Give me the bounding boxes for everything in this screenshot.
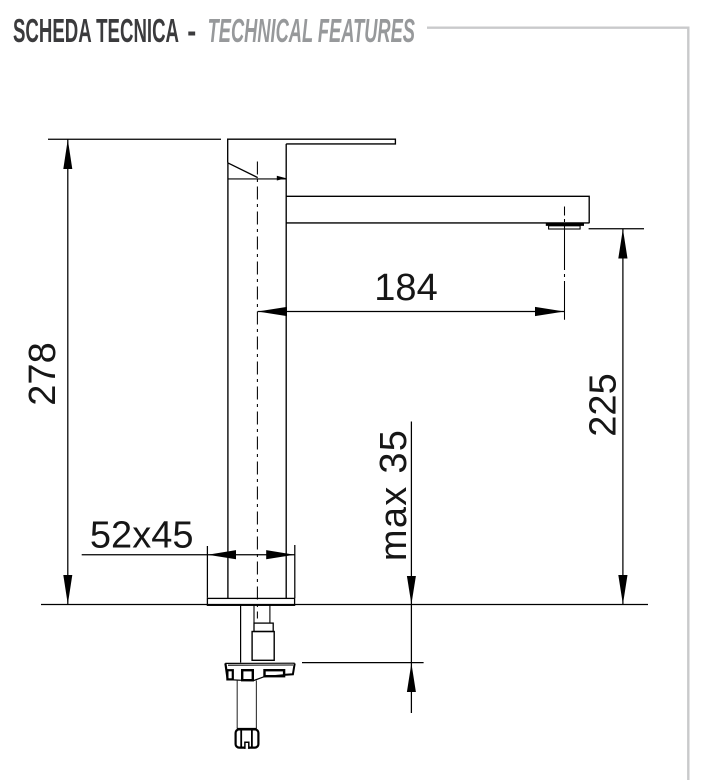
svg-text:52x45: 52x45 — [90, 514, 194, 556]
svg-text:184: 184 — [374, 267, 437, 309]
svg-text:max 35: max 35 — [373, 430, 415, 561]
svg-text:225: 225 — [583, 373, 625, 436]
svg-text:278: 278 — [22, 342, 64, 405]
